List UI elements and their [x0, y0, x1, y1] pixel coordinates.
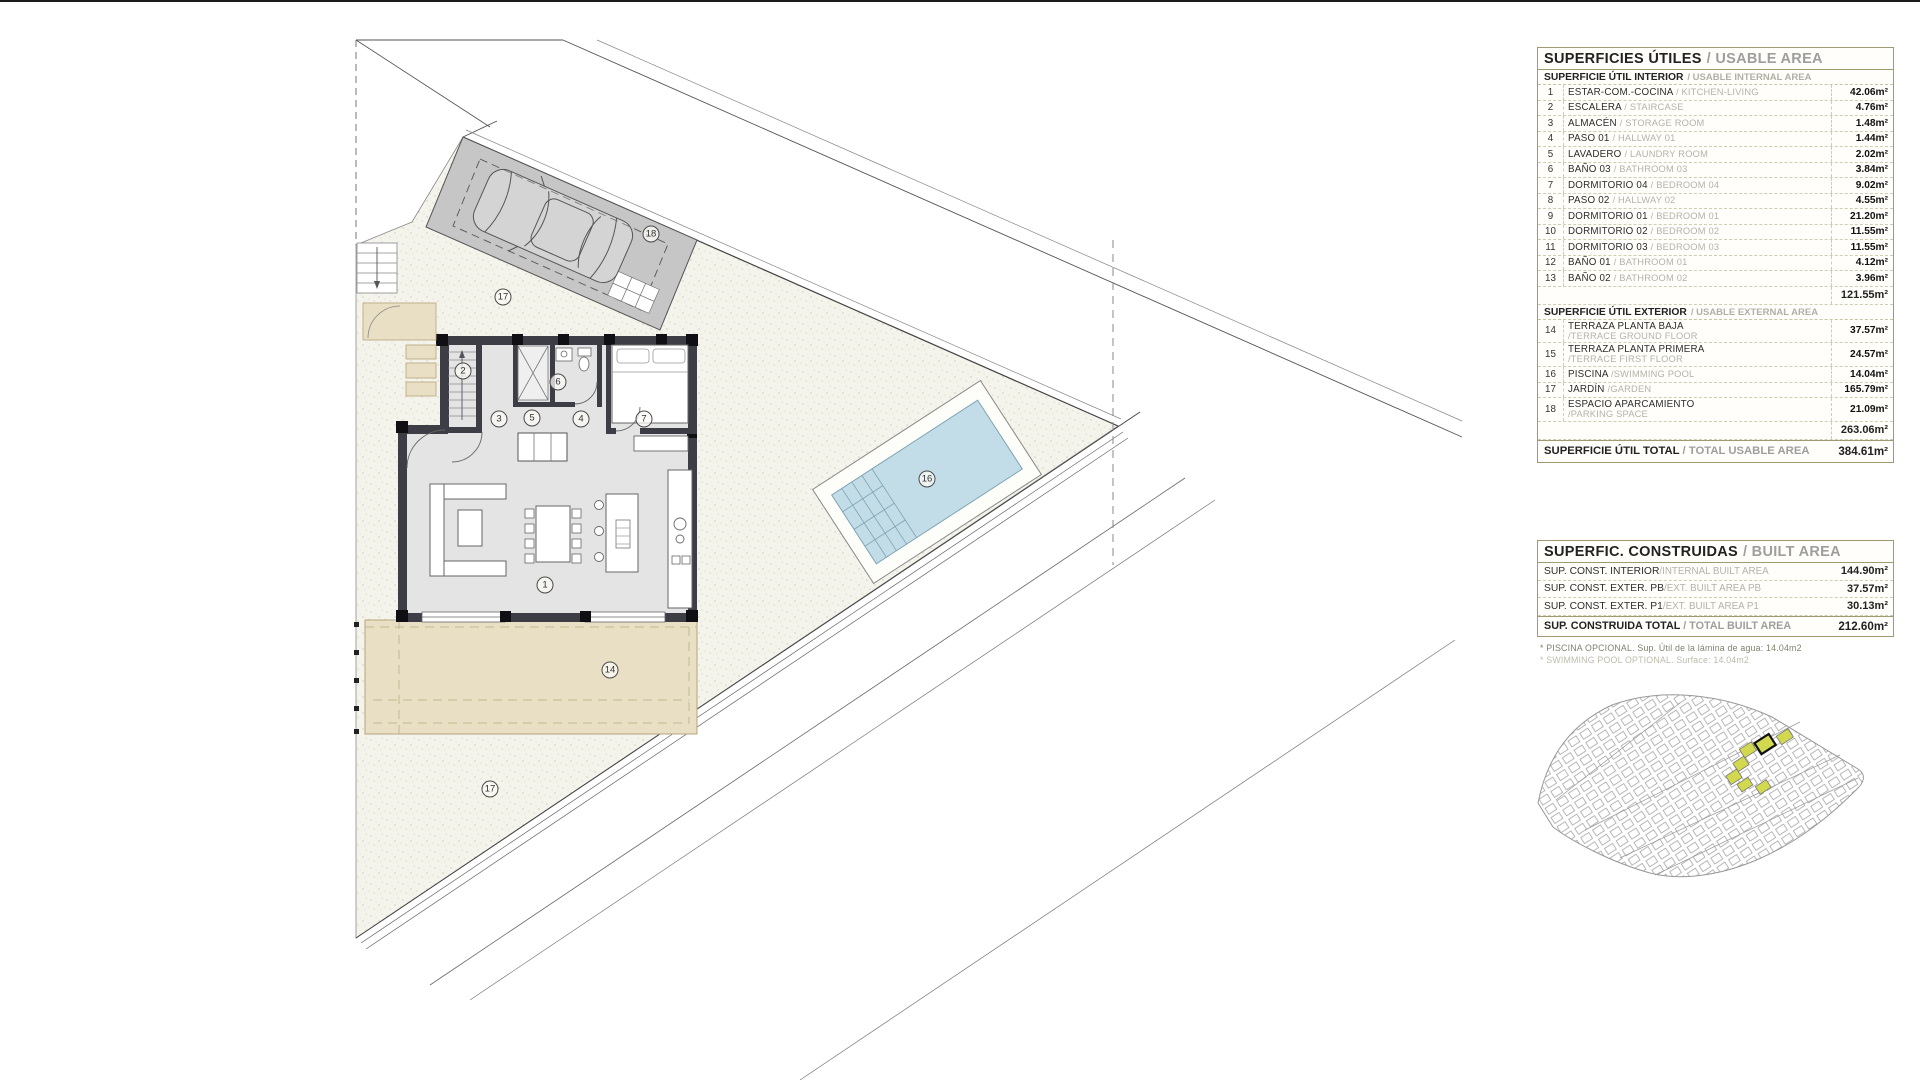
exterior-section-header: SUPERFICIE ÚTIL EXTERIOR / USABLE EXTERN…	[1538, 305, 1893, 320]
built-area-row: SUP. CONST. EXTER. P1/EXT. BUILT AREA P1…	[1538, 598, 1893, 616]
wardrobe-closet	[518, 346, 548, 400]
interior-section-header: SUPERFICIE ÚTIL INTERIOR / USABLE INTERN…	[1538, 70, 1893, 85]
plan-room-label: 14	[602, 662, 619, 679]
area-row: 7 DORMITORIO 04 / BEDROOM 04 9.02m²	[1538, 178, 1893, 194]
bed	[612, 345, 688, 423]
usable-area-table: SUPERFICIES ÚTILES / USABLE AREA SUPERFI…	[1537, 47, 1894, 463]
area-row: 15 TERRAZA PLANTA PRIMERA /TERRACE FIRST…	[1538, 343, 1893, 367]
plan-room-label: 17	[495, 289, 512, 306]
area-row: 1 ESTAR-COM.-COCINA / KITCHEN-LIVING 42.…	[1538, 85, 1893, 101]
plan-room-label: 17	[482, 781, 499, 798]
plan-room-label: 5	[524, 410, 541, 427]
area-row: 10 DORMITORIO 02 / BEDROOM 02 11.55m²	[1538, 225, 1893, 241]
usable-total-row: SUPERFICIE ÚTIL TOTAL / TOTAL USABLE ARE…	[1538, 440, 1893, 462]
area-row: 3 ALMACÉN / STORAGE ROOM 1.48m²	[1538, 116, 1893, 132]
site-location-minimap	[1538, 695, 1863, 877]
built-table-title: SUPERFIC. CONSTRUIDAS / BUILT AREA	[1538, 541, 1893, 563]
interior-rows: 1 ESTAR-COM.-COCINA / KITCHEN-LIVING 42.…	[1538, 85, 1893, 287]
area-row: 8 PASO 02 / HALLWAY 02 4.55m²	[1538, 194, 1893, 210]
plan-room-label: 1	[537, 577, 554, 594]
built-total-row: SUP. CONSTRUIDA TOTAL / TOTAL BUILT AREA…	[1538, 616, 1893, 636]
plan-room-label: 6	[550, 374, 567, 391]
footnote-en: * SWIMMING POOL OPTIONAL. Surface: 14.04…	[1540, 655, 1802, 665]
area-row: 17 JARDÍN /GARDEN 165.79m²	[1538, 383, 1893, 399]
plan-room-label: 16	[919, 471, 936, 488]
area-row: 2 ESCALERA / STAIRCASE 4.76m²	[1538, 101, 1893, 117]
exterior-rows: 14 TERRAZA PLANTA BAJA /TERRACE GROUND F…	[1538, 320, 1893, 422]
area-row: 13 BAÑO 02 / BATHROOM 02 3.96m²	[1538, 271, 1893, 287]
usable-table-title: SUPERFICIES ÚTILES / USABLE AREA	[1538, 48, 1893, 70]
area-row: 12 BAÑO 01 / BATHROOM 01 4.12m²	[1538, 256, 1893, 272]
footnote-es: * PISCINA OPCIONAL. Sup. Útil de la lámi…	[1540, 643, 1802, 653]
plan-room-label: 3	[491, 411, 508, 428]
terrace-ground-floor	[354, 620, 697, 734]
area-row: 5 LAVADERO / LAUNDRY ROOM 2.02m²	[1538, 147, 1893, 163]
area-row: 4 PASO 01 / HALLWAY 01 1.44m²	[1538, 132, 1893, 148]
area-row: 11 DORMITORIO 03 / BEDROOM 03 11.55m²	[1538, 240, 1893, 256]
built-area-row: SUP. CONST. INTERIOR/INTERNAL BUILT AREA…	[1538, 563, 1893, 581]
plan-room-label: 7	[636, 411, 653, 428]
plan-sheet: 1 2 3 5 6 4 7 14 16 17 17 18 SUPERFICIES…	[0, 0, 1920, 1080]
title-es: SUPERFICIES ÚTILES	[1544, 51, 1702, 67]
entrance-porch	[363, 303, 436, 340]
built-rows: SUP. CONST. INTERIOR/INTERNAL BUILT AREA…	[1538, 563, 1893, 616]
exterior-subtotal-row: 263.06m²	[1538, 422, 1893, 440]
hallway-wardrobe	[518, 433, 567, 461]
kitchen-island	[595, 494, 639, 572]
area-row: 16 PISCINA /SWIMMING POOL 14.04m²	[1538, 367, 1893, 383]
area-row: 6 BAÑO 03 / BATHROOM 03 3.84m²	[1538, 163, 1893, 179]
bedroom-cabinet	[634, 436, 688, 451]
built-area-row: SUP. CONST. EXTER. PB/EXT. BUILT AREA PB…	[1538, 581, 1893, 599]
built-area-table: SUPERFIC. CONSTRUIDAS / BUILT AREA SUP. …	[1537, 540, 1894, 637]
plan-room-label: 2	[455, 363, 472, 380]
pool-footnotes: * PISCINA OPCIONAL. Sup. Útil de la lámi…	[1540, 643, 1802, 665]
area-row: 14 TERRAZA PLANTA BAJA /TERRACE GROUND F…	[1538, 320, 1893, 344]
area-row: 18 ESPACIO APARCAMIENTO /PARKING SPACE 2…	[1538, 398, 1893, 422]
plan-room-label: 4	[573, 411, 590, 428]
kitchen-counter	[668, 470, 692, 608]
title-en: / USABLE AREA	[1707, 51, 1823, 67]
area-row: 9 DORMITORIO 01 / BEDROOM 01 21.20m²	[1538, 209, 1893, 225]
plan-room-label: 18	[643, 226, 660, 243]
interior-subtotal-row: 121.55m²	[1538, 287, 1893, 305]
